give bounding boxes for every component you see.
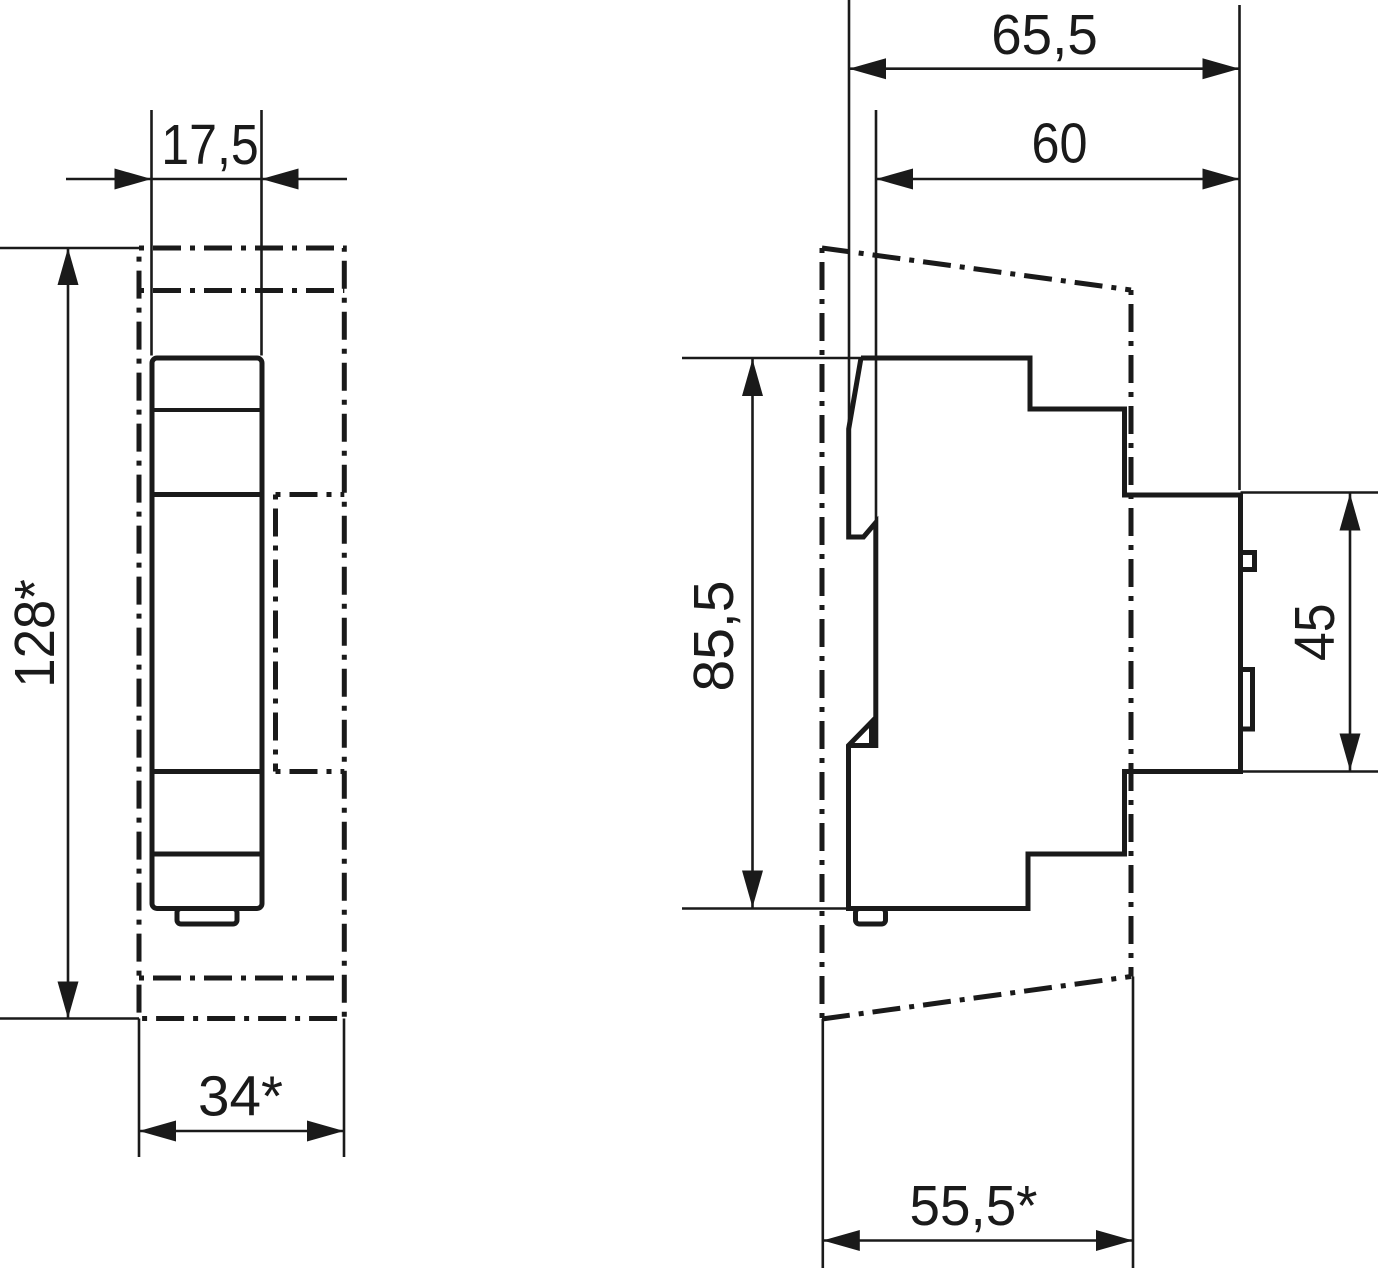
svg-text:45: 45 — [1283, 604, 1346, 662]
svg-text:65,5: 65,5 — [991, 3, 1098, 66]
svg-text:34*: 34* — [198, 1065, 283, 1128]
svg-text:128*: 128* — [3, 579, 66, 688]
svg-text:55,5*: 55,5* — [910, 1174, 1038, 1237]
svg-text:85,5: 85,5 — [682, 581, 745, 692]
svg-text:17,5: 17,5 — [161, 113, 259, 176]
svg-text:60: 60 — [1032, 112, 1088, 175]
